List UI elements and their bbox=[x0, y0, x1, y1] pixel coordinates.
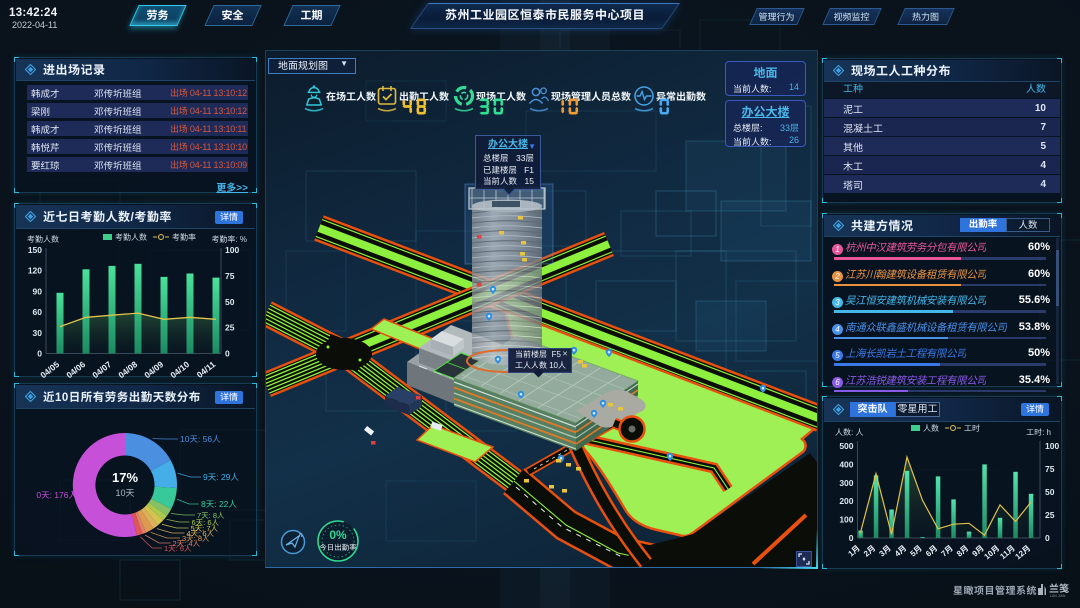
svg-text:3月: 3月 bbox=[877, 544, 892, 559]
svg-text:04/10: 04/10 bbox=[168, 359, 191, 378]
svg-text:6月: 6月 bbox=[924, 544, 939, 559]
svg-text:75: 75 bbox=[1045, 464, 1055, 474]
svg-text:100: 100 bbox=[839, 515, 853, 525]
svg-text:11月: 11月 bbox=[998, 544, 1016, 561]
svg-text:N: N bbox=[299, 533, 303, 539]
svg-text:300: 300 bbox=[839, 478, 853, 488]
svg-text:100: 100 bbox=[225, 245, 239, 255]
svg-text:0天: 176人: 0天: 176人 bbox=[36, 490, 77, 500]
svg-text:0%: 0% bbox=[329, 528, 347, 542]
svg-text:考勤率: %: 考勤率: % bbox=[211, 235, 247, 244]
svg-text:人数: 人数 bbox=[923, 424, 939, 433]
svg-text:17%: 17% bbox=[112, 470, 138, 485]
svg-text:04/09: 04/09 bbox=[142, 359, 165, 378]
svg-text:1月: 1月 bbox=[846, 544, 861, 559]
svg-text:150: 150 bbox=[28, 245, 42, 255]
svg-text:120: 120 bbox=[28, 266, 42, 276]
svg-text:12月: 12月 bbox=[1014, 544, 1033, 562]
svg-text:0: 0 bbox=[225, 349, 230, 359]
svg-text:5月: 5月 bbox=[908, 544, 923, 559]
svg-text:10月: 10月 bbox=[983, 544, 1002, 562]
svg-text:4月: 4月 bbox=[893, 544, 908, 559]
svg-text:500: 500 bbox=[839, 441, 853, 451]
svg-text:工时: h: 工时: h bbox=[1026, 428, 1051, 437]
svg-text:25: 25 bbox=[1045, 510, 1055, 520]
svg-text:50: 50 bbox=[1045, 487, 1055, 497]
svg-text:04/05: 04/05 bbox=[38, 359, 61, 378]
svg-text:04/08: 04/08 bbox=[116, 359, 139, 378]
svg-text:200: 200 bbox=[839, 496, 853, 506]
svg-text:8月: 8月 bbox=[955, 544, 970, 559]
svg-text:25: 25 bbox=[225, 323, 235, 333]
svg-text:75: 75 bbox=[225, 271, 235, 281]
svg-text:04/07: 04/07 bbox=[90, 359, 113, 378]
svg-text:30: 30 bbox=[33, 328, 43, 338]
svg-text:考勤人数: 考勤人数 bbox=[115, 233, 147, 242]
svg-text:考勤人数: 考勤人数 bbox=[27, 235, 59, 244]
svg-text:10天: 56人: 10天: 56人 bbox=[180, 434, 221, 444]
svg-text:0: 0 bbox=[849, 533, 854, 543]
svg-text:50: 50 bbox=[225, 297, 235, 307]
svg-text:100: 100 bbox=[1045, 441, 1059, 451]
svg-text:考勤率: 考勤率 bbox=[172, 233, 196, 242]
svg-text:04/11: 04/11 bbox=[195, 359, 218, 378]
svg-text:400: 400 bbox=[839, 459, 853, 469]
svg-text:今日出勤率: 今日出勤率 bbox=[319, 543, 357, 552]
svg-text:LAN JIAN: LAN JIAN bbox=[1050, 594, 1066, 598]
svg-text:90: 90 bbox=[33, 286, 43, 296]
svg-text:10天: 10天 bbox=[115, 488, 134, 498]
svg-text:0: 0 bbox=[37, 349, 42, 359]
svg-text:0: 0 bbox=[1045, 533, 1050, 543]
svg-text:1天: 6人: 1天: 6人 bbox=[164, 544, 192, 553]
svg-text:9天: 29人: 9天: 29人 bbox=[203, 472, 239, 482]
svg-text:04/06: 04/06 bbox=[64, 359, 87, 378]
svg-text:7月: 7月 bbox=[939, 544, 954, 559]
svg-text:60: 60 bbox=[33, 307, 43, 317]
svg-text:8天: 22人: 8天: 22人 bbox=[201, 499, 237, 509]
svg-text:2月: 2月 bbox=[862, 544, 877, 559]
svg-text:工时: 工时 bbox=[964, 424, 980, 433]
svg-text:人数: 人: 人数: 人 bbox=[835, 428, 863, 437]
